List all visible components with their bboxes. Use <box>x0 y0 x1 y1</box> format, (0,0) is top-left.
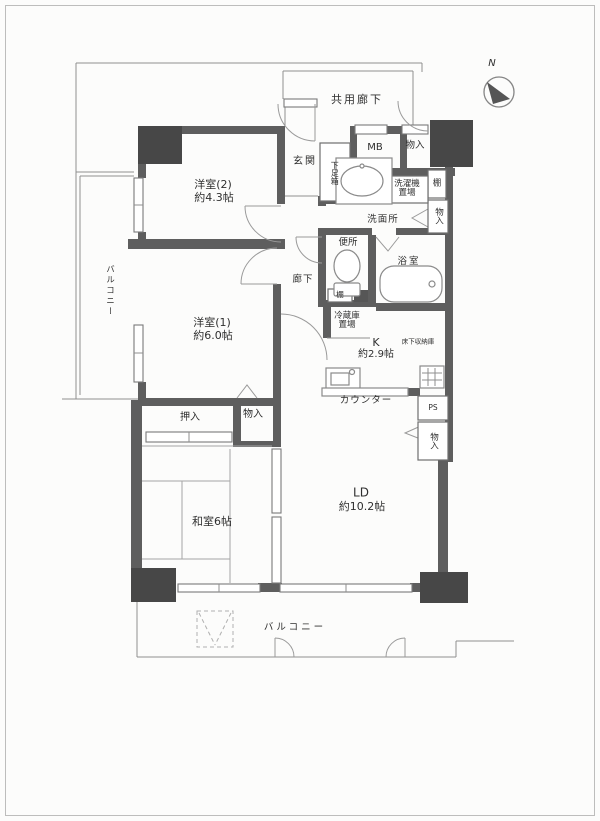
label-fridge-place: 冷蔵庫 置場 <box>334 312 360 330</box>
kitchen-faucet-icon <box>350 370 355 375</box>
sliding-partition-upper <box>272 449 281 513</box>
label-common-corridor: 共用廊下 <box>331 94 383 106</box>
label-shelf-toilet: 棚 <box>336 291 344 299</box>
faucet-icon <box>360 164 364 168</box>
label-closet-top: 物入 <box>405 141 424 151</box>
label-western2-size: 約4.3帖 <box>194 192 234 204</box>
label-western1-name: 洋室(1) <box>193 317 231 329</box>
mb-door <box>355 125 387 134</box>
evacuation-hatch-icon <box>197 611 233 647</box>
label-counter: カウンター <box>340 396 393 406</box>
bath-folding-door-icon <box>376 237 399 251</box>
label-compass-n: N <box>488 59 495 70</box>
label-closet-mid: 物入 <box>243 410 263 421</box>
floor-plan-drawing <box>0 0 600 821</box>
label-closet-washroom: 物入 <box>434 208 443 225</box>
label-ld-name: LD <box>353 487 369 500</box>
western1-door-arc <box>241 248 277 284</box>
label-washer-place: 洗濯機 置場 <box>394 180 420 198</box>
western2-door-arc <box>245 206 281 242</box>
compass-needle-icon <box>487 82 510 104</box>
floor-plan-page: 共用廊下 N 洋室(2) 約4.3帖 玄関 下足箱 MB 物入 洗濯機 置場 棚… <box>0 0 600 821</box>
closet-top-door <box>402 125 428 134</box>
label-shelf-top: 棚 <box>433 180 442 189</box>
entrance-door-sill <box>284 99 317 107</box>
bathtub-drain-icon <box>429 281 435 287</box>
label-pipe-space: PS <box>428 404 437 412</box>
sliding-partition-lower <box>272 517 281 583</box>
label-closet-ld: 物入 <box>429 433 438 450</box>
label-western2-name: 洋室(2) <box>194 179 232 191</box>
sink-icon <box>341 166 383 196</box>
label-entrance: 玄関 <box>293 157 317 168</box>
ld-door-arc <box>281 314 327 360</box>
label-shoe-box: 下足箱 <box>330 161 338 185</box>
label-underfloor-storage: 床下収納庫 <box>402 339 435 346</box>
label-washroom: 洗面所 <box>367 215 399 225</box>
label-bathroom: 浴室 <box>397 257 420 267</box>
toilet-bowl-icon <box>334 250 360 282</box>
label-kitchen-size: 約2.9帖 <box>358 350 394 361</box>
label-kitchen-name: K <box>372 337 379 349</box>
label-oshiire: 押入 <box>180 413 200 424</box>
label-balcony-left: バルコニー <box>105 265 114 318</box>
stove-icon <box>420 366 444 388</box>
label-hallway: 廊下 <box>292 275 313 285</box>
closet-washroom-arrow-icon <box>412 209 428 227</box>
label-meter-box: MB <box>367 143 383 154</box>
label-western1-size: 約6.0帖 <box>193 330 233 342</box>
balcony-left-outline <box>62 63 141 399</box>
label-balcony-bottom: バルコニー <box>264 623 326 633</box>
label-toilet: 便所 <box>338 238 357 248</box>
compass <box>484 77 514 107</box>
label-japanese-room: 和室6帖 <box>192 516 232 528</box>
label-ld-size: 約10.2帖 <box>339 501 386 513</box>
closet-mid-door-icon <box>237 385 257 398</box>
